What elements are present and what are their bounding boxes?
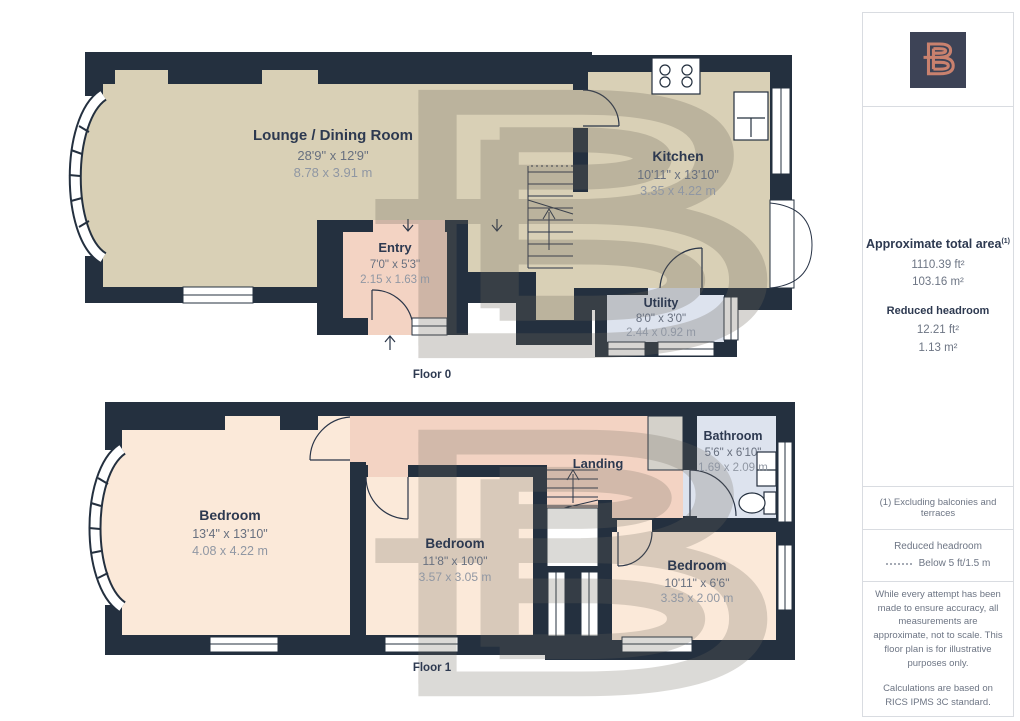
bay-window — [82, 449, 122, 607]
total-area-ft: 1110.39 ft² — [911, 257, 964, 274]
kitchen-label: Kitchen — [652, 148, 703, 164]
bedroom1-label: Bedroom — [199, 507, 260, 523]
bedroom2-door-opening — [368, 465, 408, 477]
brand-logo — [863, 13, 1013, 107]
sink-icon — [734, 92, 768, 140]
french-doors — [770, 200, 812, 288]
svg-text:4.08 x 4.22 m: 4.08 x 4.22 m — [192, 544, 268, 558]
footnote-marker: (1) — [1001, 238, 1010, 245]
lounge-alcove — [262, 70, 318, 84]
svg-text:10'11" x 13'10": 10'11" x 13'10" — [637, 168, 719, 182]
total-area-title: Approximate total area(1) — [866, 237, 1010, 251]
floorplan-canvas: Lounge / Dining Room 28'9" x 12'9" 8.78 … — [0, 0, 860, 721]
svg-text:3.35 x 4.22 m: 3.35 x 4.22 m — [640, 184, 716, 198]
floor1-caption: Floor 1 — [413, 662, 452, 674]
svg-text:28'9" x 12'9": 28'9" x 12'9" — [297, 148, 369, 163]
svg-text:5'6" x 6'10": 5'6" x 6'10" — [705, 447, 762, 459]
hob-icon — [652, 58, 700, 94]
room-bedroom1 — [122, 416, 350, 635]
info-sidebar: Approximate total area(1) 1110.39 ft² 10… — [862, 12, 1014, 717]
reduced-headroom-title: Reduced headroom — [887, 305, 990, 317]
utility-label: Utility — [644, 296, 679, 310]
reduced-headroom-ft: 12.21 ft² — [917, 322, 959, 339]
lounge-alcove — [115, 70, 168, 84]
lounge-label: Lounge / Dining Room — [253, 127, 413, 144]
svg-text:3.57 x 3.05 m: 3.57 x 3.05 m — [419, 570, 492, 584]
dotted-line-icon — [886, 563, 912, 565]
svg-text:3.35 x 2.00 m: 3.35 x 2.00 m — [661, 591, 734, 605]
svg-text:10'11" x 6'6": 10'11" x 6'6" — [665, 576, 730, 590]
brand-logo-icon — [910, 32, 966, 88]
svg-text:2.44 x 0.92 m: 2.44 x 0.92 m — [626, 327, 696, 339]
bedroom2-label: Bedroom — [425, 536, 484, 551]
svg-text:1.69 x 2.09 m: 1.69 x 2.09 m — [698, 462, 768, 474]
svg-text:13'4" x 13'10": 13'4" x 13'10" — [192, 527, 268, 541]
legend-value: Below 5 ft/1.5 m — [919, 558, 991, 569]
area-footnote: (1) Excluding balconies and terraces — [863, 487, 1013, 529]
total-area-m: 103.16 m² — [912, 274, 964, 291]
disclaimer-text-2: Calculations are based on RICS IPMS 3C s… — [873, 682, 1003, 710]
svg-text:11'8" x 10'0": 11'8" x 10'0" — [423, 554, 488, 568]
legend-title: Reduced headroom — [894, 541, 982, 552]
disclaimer-text-1: While every attempt has been made to ens… — [873, 588, 1003, 671]
reduced-headroom-m: 1.13 m² — [919, 340, 958, 357]
area-summary: Approximate total area(1) 1110.39 ft² 10… — [863, 107, 1013, 487]
svg-text:8'0" x 3'0": 8'0" x 3'0" — [636, 313, 686, 325]
entry-label: Entry — [378, 240, 412, 255]
bedroom3-label: Bedroom — [667, 558, 726, 573]
disclaimer: While every attempt has been made to ens… — [863, 582, 1013, 716]
headroom-legend: Reduced headroom Below 5 ft/1.5 m — [863, 530, 1013, 582]
svg-text:8.78 x 3.91 m: 8.78 x 3.91 m — [294, 165, 373, 180]
svg-text:7'0" x 5'3": 7'0" x 5'3" — [370, 259, 420, 271]
floor0-caption: Floor 0 — [413, 369, 451, 381]
toilet-icon — [739, 492, 776, 514]
svg-text:2.15 x 1.63 m: 2.15 x 1.63 m — [360, 274, 430, 286]
bedroom1-alcove — [225, 416, 280, 430]
bathroom-label: Bathroom — [703, 429, 762, 443]
bay-window — [60, 95, 103, 258]
landing-label: Landing — [573, 456, 624, 471]
